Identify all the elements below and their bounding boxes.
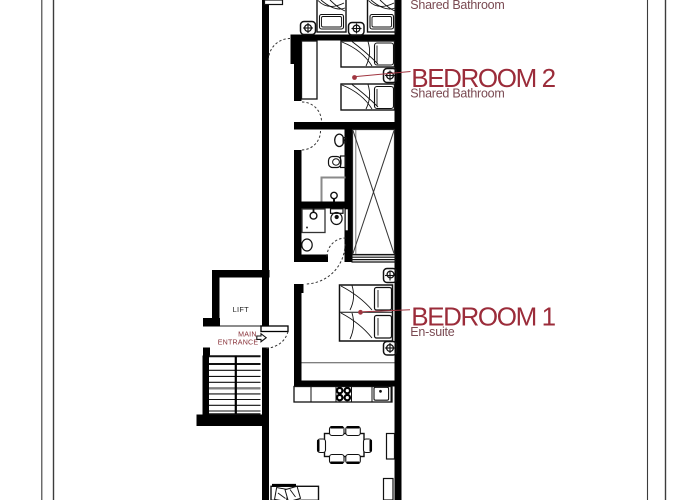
svg-text:Shared Bathroom: Shared Bathroom [410, 0, 504, 12]
svg-text:Shared Bathroom: Shared Bathroom [410, 87, 504, 101]
svg-text:ENTRANCE: ENTRANCE [218, 338, 259, 346]
svg-text:LIFT: LIFT [233, 305, 250, 314]
svg-text:En-suite: En-suite [410, 325, 455, 339]
svg-text:MAIN: MAIN [238, 330, 257, 338]
